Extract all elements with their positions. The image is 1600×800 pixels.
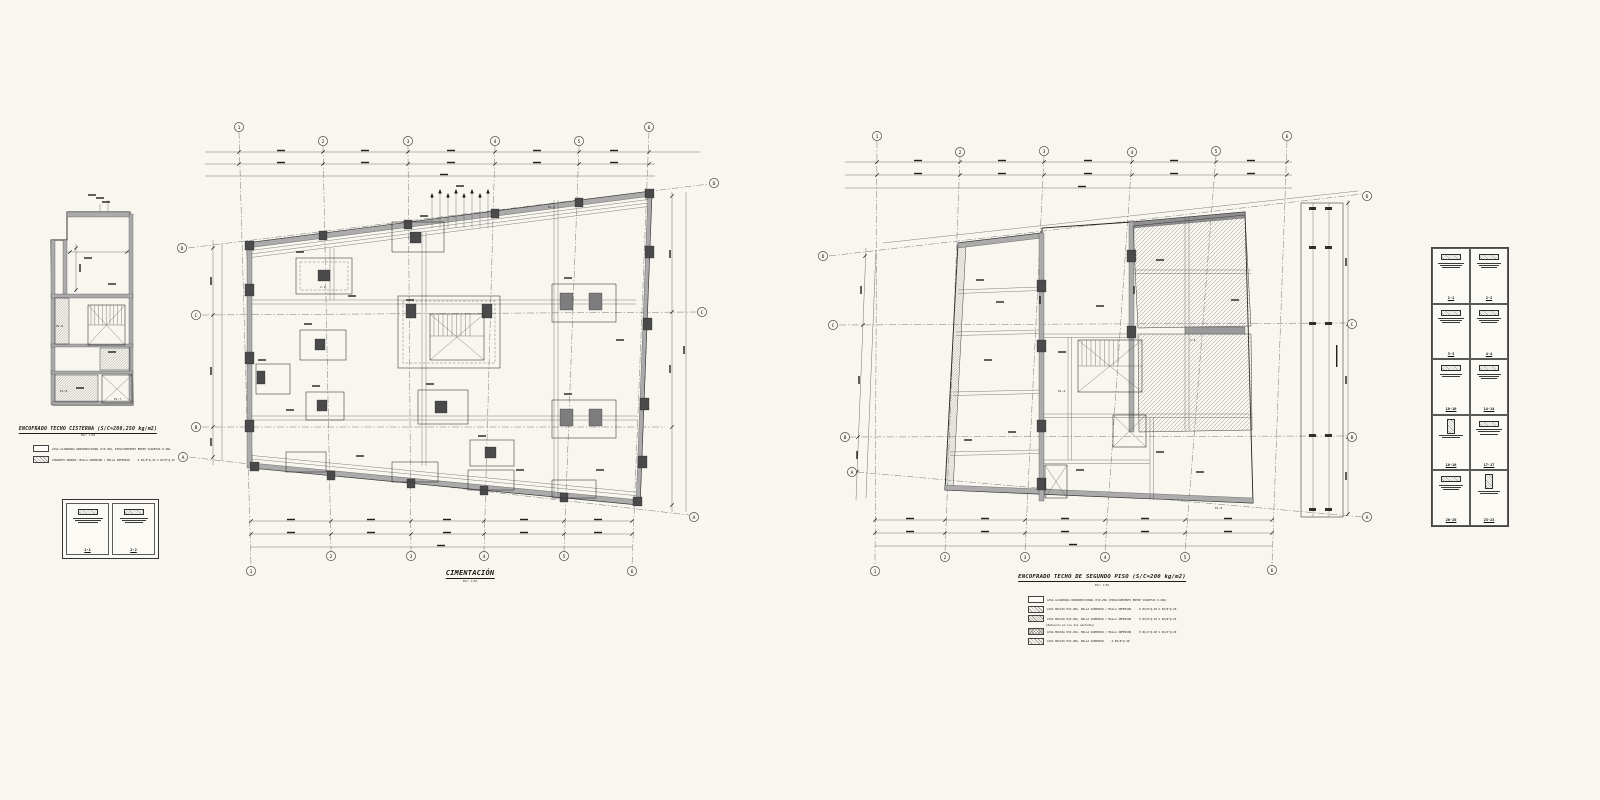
cimentacion-title: CIMENTACIÓN	[446, 569, 495, 579]
cisterna-section-details-box: 1-1 2-2	[62, 499, 159, 559]
legend-spec: E Ø1/2"@.20 S Ø1/2"@.20	[1139, 630, 1176, 634]
legend-text: (Refuerzo en los dos sentidos)	[1046, 623, 1095, 627]
beam-section-sketch	[1485, 474, 1493, 489]
legend-text: LOSA MACIZA H=0.20m, MALLA SUPERIOR	[1047, 639, 1104, 643]
beam-section-sketch	[124, 509, 144, 515]
legend-swatch-plain	[1028, 596, 1044, 603]
cisterna-scale: ESC: 1/50	[81, 434, 95, 437]
beam-section-sketch	[1447, 419, 1455, 434]
beam-section-sketch	[1479, 421, 1499, 427]
legend-text: LOSA MACIZA H=0.25m, MALLA SUPERIOR / MA…	[1047, 630, 1131, 634]
cimentacion-scale: ESC: 1/50	[463, 580, 477, 583]
segundo-legend-row: LOSA MACIZA H=0.20m, MALLA SUPERIOR / MA…	[1028, 615, 1176, 622]
legend-swatch-hatch	[1028, 638, 1044, 645]
section-label: 14-14	[1471, 407, 1507, 411]
legend-spec: E Ø3/8"@.25 S Ø3/8"@.25	[1139, 617, 1176, 621]
segundo-legend-row: LOSA MACIZA H=0.25m, MALLA SUPERIOR / MA…	[1028, 628, 1176, 635]
beam-section-sketch	[1479, 254, 1499, 260]
legend-text: LOSA ALIGERADA UNIDIRECCIONAL H=0.20m. E…	[52, 447, 172, 451]
beam-section-sketch	[1479, 365, 1499, 371]
section-label: 1-1	[67, 548, 108, 552]
section-detail-cell: 10-10	[1432, 359, 1470, 415]
beam-section-sketch	[1479, 310, 1499, 316]
legend-text: LOSA MACIZA H=0.20m, MALLA SUPERIOR / MA…	[1047, 617, 1131, 621]
beam-section-sketch	[78, 509, 98, 515]
section-detail-cell: 23-23	[1470, 470, 1508, 526]
beam-section-sketch	[1441, 476, 1461, 482]
section-label: 16-16	[1433, 463, 1469, 467]
legend-swatch-hatch-dense	[1028, 615, 1044, 622]
section-detail-cell: 1-1	[1432, 248, 1470, 304]
section-detail-cell: 16-16	[1432, 415, 1470, 471]
section-detail-cell: 2-2	[112, 503, 155, 555]
segundo-legend-note: (Refuerzo en los dos sentidos)	[1046, 623, 1095, 627]
section-label: 4-4	[1471, 352, 1507, 356]
segundo-legend-row: LOSA MACIZA H=0.20m, MALLA SUPERIOR S Ø3…	[1028, 638, 1129, 645]
section-label: 20-20	[1433, 518, 1469, 522]
legend-swatch-hatch	[1028, 606, 1044, 613]
section-label: 1-1	[1433, 296, 1469, 300]
section-detail-cell: 20-20	[1432, 470, 1470, 526]
cisterna-title: ENCOFRADO TECHO CISTERNA (S/C=200,250 kg…	[19, 426, 157, 434]
legend-text: LOSA MACIZA H=0.20m, MALLA SUPERIOR / MA…	[1047, 607, 1131, 611]
section-label: 10-10	[1433, 407, 1469, 411]
section-label: 17-17	[1471, 463, 1507, 467]
beam-section-sketch	[1441, 254, 1461, 260]
legend-text: CONCRETO ARMADO: MALLA SUPERIOR / MALLA …	[52, 458, 130, 462]
cisterna-legend-row: LOSA ALIGERADA UNIDIRECCIONAL H=0.20m. E…	[33, 445, 172, 452]
legend-spec: E Ø3/8"@.20 S Ø3/8"@.20	[1139, 607, 1176, 611]
segundo-title: ENCOFRADO TECHO DE SEGUNDO PISO (S/C=200…	[1018, 574, 1186, 582]
beam-section-sketch	[1441, 310, 1461, 316]
segundo-legend-row: LOSA MACIZA H=0.20m, MALLA SUPERIOR / MA…	[1028, 606, 1176, 613]
legend-swatch-hatch	[33, 456, 49, 463]
section-detail-cell: 3-3	[1432, 304, 1470, 360]
legend-swatch-crosshatch	[1028, 628, 1044, 635]
legend-swatch-plain	[33, 445, 49, 452]
section-detail-cell: 1-1	[66, 503, 109, 555]
section-detail-cell: 17-17	[1470, 415, 1508, 471]
segundo-legend-row: LOSA ALIGERADA UNIDIRECCIONAL H=0.20m (E…	[1028, 596, 1167, 603]
legend-spec: E Ø3/8"@.25 S Ø3/8"@.25	[138, 458, 175, 462]
legend-spec: S Ø3/8"@.20	[1112, 639, 1130, 643]
legend-text: LOSA ALIGERADA UNIDIRECCIONAL H=0.20m (E…	[1047, 598, 1167, 602]
section-label: 23-23	[1471, 518, 1507, 522]
cisterna-legend-row: CONCRETO ARMADO: MALLA SUPERIOR / MALLA …	[33, 456, 175, 463]
beam-sections-grid: 1-1 2-2 3-3 4-4 10-10 14-14	[1431, 247, 1509, 527]
segundo-scale: ESC: 1/50	[1095, 584, 1109, 587]
beam-section-sketch	[1441, 365, 1461, 371]
section-label: 3-3	[1433, 352, 1469, 356]
section-detail-cell: 4-4	[1470, 304, 1508, 360]
section-detail-cell: 2-2	[1470, 248, 1508, 304]
drawing-sheet: PL-6 PL-8 PL-7	[0, 0, 1600, 800]
section-label: 2-2	[113, 548, 154, 552]
section-label: 2-2	[1471, 296, 1507, 300]
section-detail-cell: 14-14	[1470, 359, 1508, 415]
